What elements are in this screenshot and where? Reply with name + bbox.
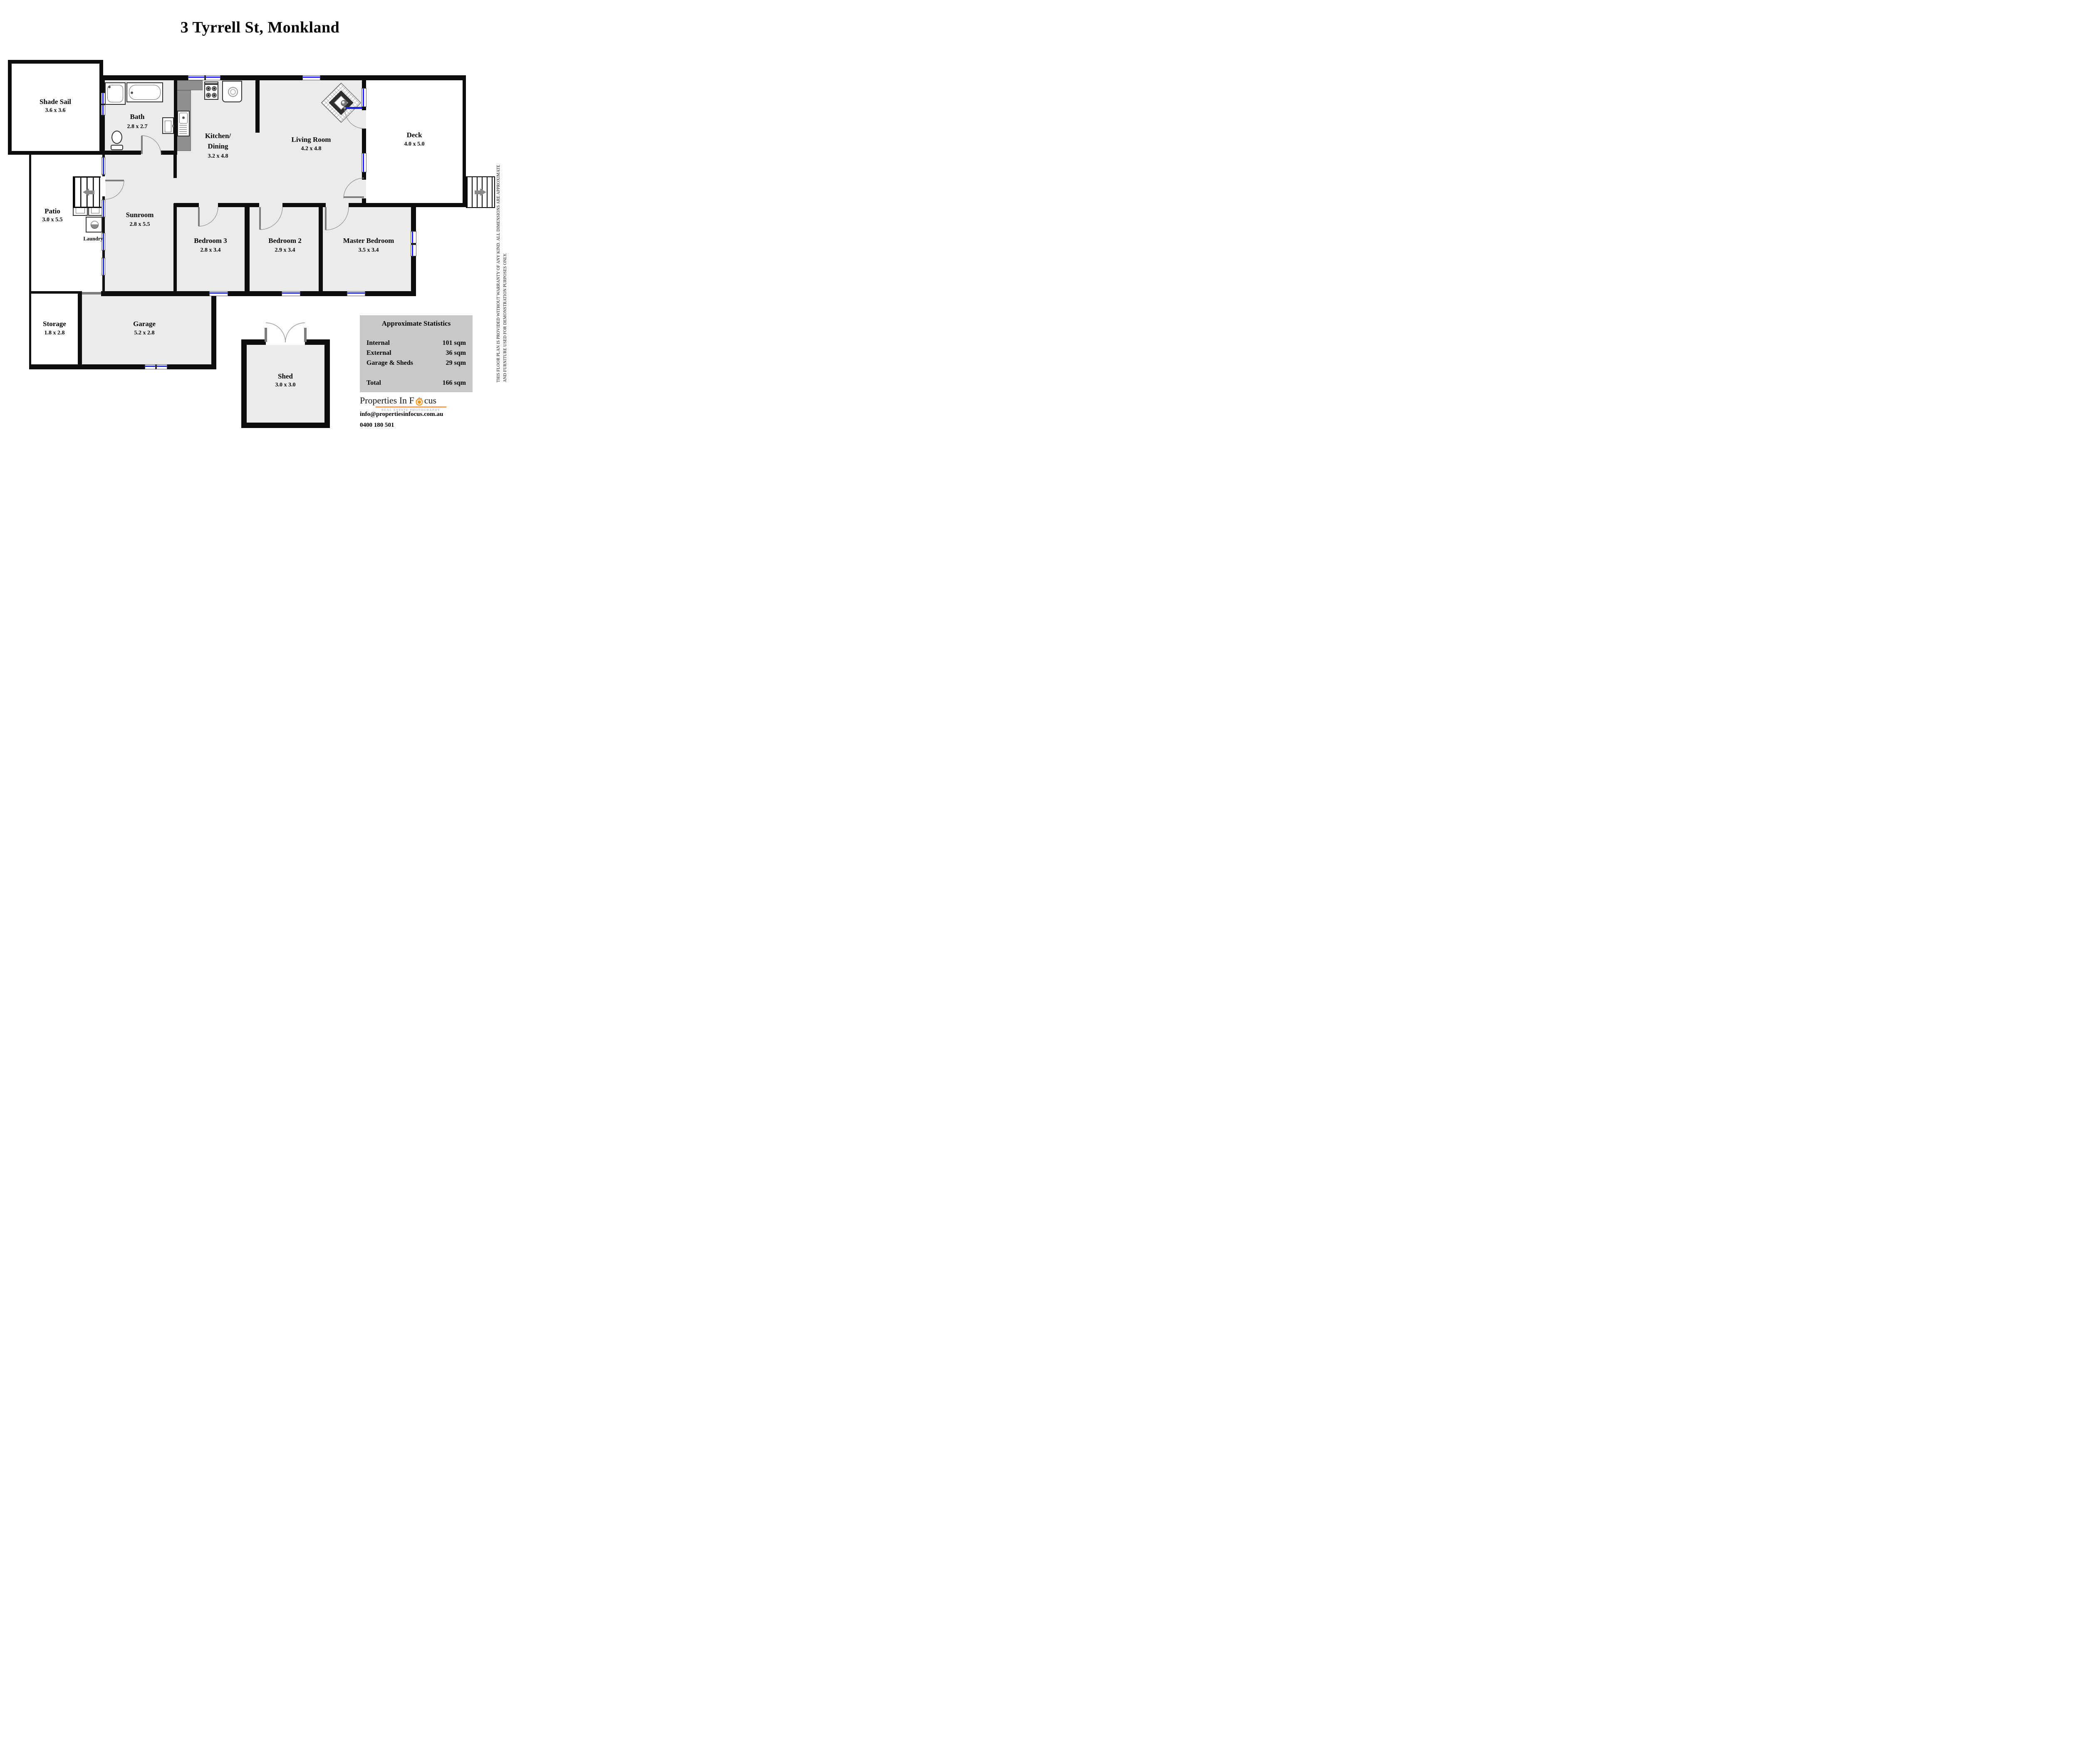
room-label-sunroom: Sunroom [126,211,154,219]
disclaimer-line-1: THIS FLOOR PLAN IS PROVIDED WITHOUT WARR… [496,165,501,382]
logo-text-pre: Properties In F [360,395,414,406]
room-label-shed: Shed [278,373,293,381]
stats-value: 166 sqm [443,379,466,387]
stair-arrow-left-icon [83,188,89,196]
room-label-garage: Garage [133,320,156,328]
wall-bedroom-top [174,203,199,207]
wall-living-deck [362,172,366,180]
wall-bath-bottom [161,151,174,155]
room-dims-storage: 1.8 x 2.8 [45,330,65,336]
wall-bedroom-top [218,203,259,207]
stats-value: 36 sqm [446,349,466,357]
kitchen-window [206,75,220,80]
vanity-basin [162,117,174,134]
stats-row-external: External 36 sqm [366,349,466,357]
wall-bedroom-bottom [101,291,416,296]
shed-door-opening [266,339,305,345]
wall-living-deck [362,129,366,153]
sunroom-window [102,258,105,275]
wall-bath-kitchen-divider [174,80,177,155]
stats-label: Internal [366,339,390,347]
room-label-shade-sail: Shade Sail [40,98,71,106]
stove [204,82,218,100]
stats-label: Total [366,379,381,387]
shed-door-jamb [304,328,307,342]
room-dims-shade-sail: 3.6 x 3.6 [45,107,66,114]
garage-window [156,364,167,369]
wall-bed2-master-divider [319,207,323,296]
wall-storage-top [29,291,78,294]
kitchen-window [188,75,205,80]
wall-deck-right [463,75,466,207]
washing-machine [86,217,102,233]
shed-door-jamb [265,328,267,342]
fireplace-logo-icon [341,100,347,106]
kitchen-sink [177,111,190,136]
wall-patio-left [29,155,31,369]
wall-living-deck [362,75,366,88]
stair-arrow-right-icon [480,188,486,196]
room-label-living: Living Room [292,136,331,144]
stats-row-garage-sheds: Garage & Sheds 29 sqm [366,359,466,367]
logo-underline [376,406,446,408]
room-dims-garage: 5.2 x 2.8 [134,330,155,336]
room-dims-living: 4.2 x 4.8 [301,146,322,152]
master-window [347,291,365,296]
room-dims-bedroom2: 2.9 x 3.4 [275,247,295,253]
living-deck-window [362,88,366,107]
sunroom-window [102,200,105,217]
wall-bedroom-top [282,203,326,207]
room-label-master: Master Bedroom [343,237,394,245]
bath-window [101,105,105,115]
camera-lens-house-icon [415,396,424,406]
room-dims-shed: 3.0 x 3.0 [275,382,296,388]
bathtub [126,82,163,102]
wall-sunroom-divider [173,203,177,296]
stats-value: 101 sqm [443,339,466,347]
contact-phone: 0400 180 501 [360,422,394,429]
garage-window [145,364,156,369]
wall-storage-garage-divider [78,291,82,369]
kitchen-counter-top [176,80,203,90]
patio-stairs [73,176,104,208]
room-dims-bath: 2.8 x 2.7 [127,124,148,130]
living-deck-window [362,153,366,172]
stats-value: 29 sqm [446,359,466,367]
bedroom3-window [209,291,228,296]
stats-label: External [366,349,391,357]
wall-top [102,75,466,80]
wall-living-deck [362,107,366,110]
contact-email: info@propertiesinfocus.com.au [360,411,443,418]
room-label-laundry: Laundry [83,236,103,242]
bath-window [101,93,105,104]
wall-bed3-bed2-divider [245,207,250,296]
garage-side-door-leaf [80,292,101,294]
room-label-deck: Deck [407,131,422,139]
room-dims-sunroom: 2.8 x 5.5 [130,221,150,228]
floor-living-lower [255,155,366,203]
wall-sunroom-divider [173,155,177,178]
room-label-bedroom3: Bedroom 3 [194,237,227,245]
wall-bedroom-top [349,203,466,207]
stats-label: Garage & Sheds [366,359,413,367]
living-window [302,75,320,80]
room-label-patio: Patio [45,208,60,215]
logo-text-post: cus [424,395,436,406]
wall-bath-bottom [102,151,141,155]
bedroom2-window [282,291,300,296]
room-label-storage: Storage [43,320,66,328]
deck-stairs [466,176,495,208]
wall-living-left [255,80,260,133]
room-dims-master: 3.5 x 3.4 [359,247,379,253]
stats-row-total: Total 166 sqm [366,379,466,387]
agency-logo: Properties In F cus REAL ESTATE PHOTOGRA… [360,395,476,412]
room-label-kitchen-1: Kitchen/ [205,132,231,140]
room-dims-deck: 4.0 x 5.0 [404,141,425,147]
room-dims-kitchen: 3.2 x 4.8 [208,153,228,159]
room-label-bedroom2: Bedroom 2 [268,237,302,245]
sunroom-door-opening [101,176,106,196]
floor-plan-page: 3 Tyrrell St, Monkland [0,0,520,441]
fridge [222,81,242,102]
stats-panel: Approximate Statistics Internal 101 sqm … [360,315,473,392]
wall-garage-right [211,291,216,369]
master-right-window [411,231,416,243]
room-label-bath: Bath [130,113,145,121]
stats-row-internal: Internal 101 sqm [366,339,466,347]
room-dims-bedroom3: 2.8 x 3.4 [201,247,221,253]
room-dims-patio: 3.0 x 5.5 [42,217,63,223]
stats-title: Approximate Statistics [360,319,473,328]
master-right-window [411,245,416,256]
floor-sunroom-hall [102,155,260,203]
room-label-kitchen-2: Dining [208,143,228,151]
page-title: 3 Tyrrell St, Monkland [0,18,520,37]
sunroom-window [102,157,105,175]
wall-garage-bottom [29,364,216,369]
disclaimer-line-2: AND FURNITURE USED FOR DEMONSTRATION PUR… [503,253,508,382]
shower [105,82,126,105]
